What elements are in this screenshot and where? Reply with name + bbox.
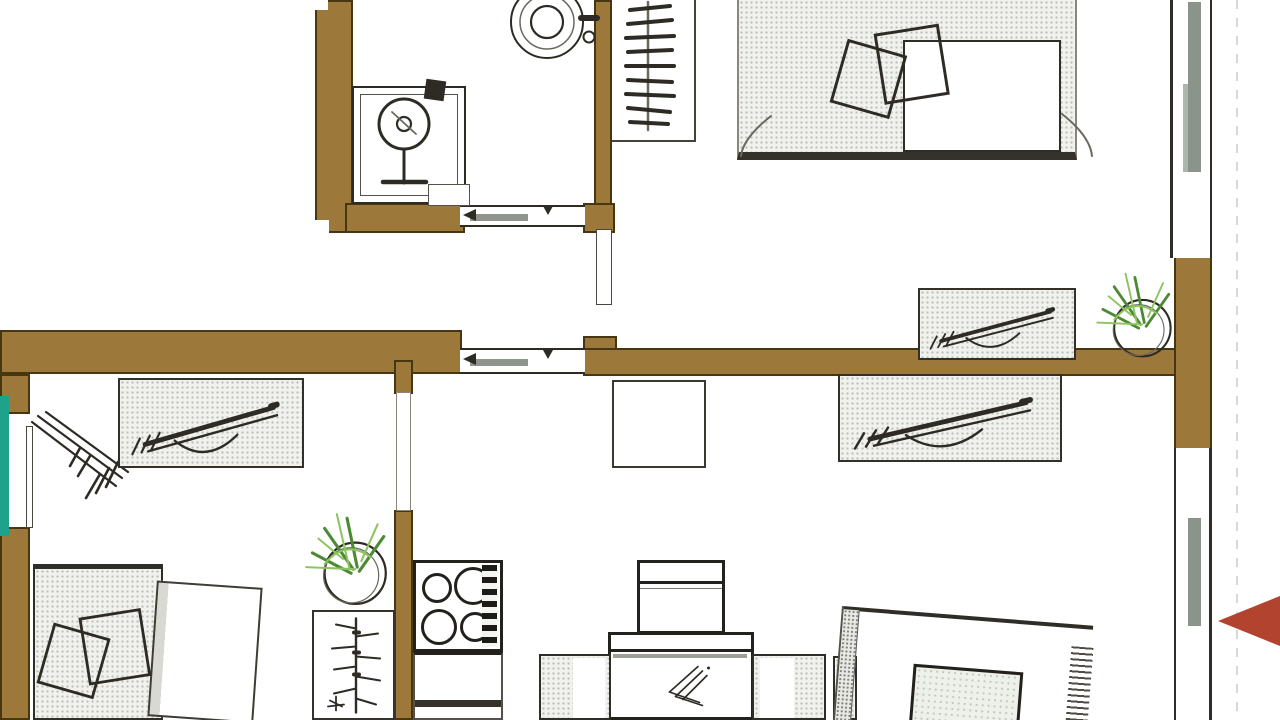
single-bed-duvet <box>147 580 262 720</box>
radiator-icon <box>920 290 1074 358</box>
washbasin-icon <box>503 0 591 66</box>
radiator-sketch <box>918 288 1076 360</box>
door-direction-arrow <box>463 209 476 221</box>
shower-corner-post <box>424 79 447 102</box>
table-edge-line <box>611 649 751 652</box>
coffee-table <box>907 664 1023 720</box>
dining-chair-left <box>539 654 611 720</box>
burner <box>422 573 452 603</box>
stove-grill-strip <box>482 565 497 647</box>
radiator-icon <box>120 380 302 466</box>
radiator-icon <box>840 376 1060 460</box>
bed-skirt-curve <box>735 112 777 158</box>
door-direction-arrow <box>543 206 553 215</box>
counter-drawer-line <box>415 700 501 707</box>
bathroom-east-wall <box>594 0 612 205</box>
floor-plan-scan <box>0 0 1280 720</box>
rug-group <box>829 606 1093 720</box>
window-glazing <box>1188 518 1201 626</box>
hall-door-leaf-open <box>612 380 706 468</box>
stove <box>413 560 503 652</box>
edge-highlight-strip <box>0 396 9 536</box>
kitchen-counter <box>413 652 503 720</box>
rug-right-fringe <box>1061 646 1094 720</box>
wardrobe <box>612 0 696 142</box>
door-direction-arrow <box>543 350 553 359</box>
table-centerpiece-sketch <box>631 659 741 719</box>
chair-back-line <box>640 588 722 589</box>
chair-seat <box>760 658 794 718</box>
potted-plant-icon <box>1086 266 1180 364</box>
window-glazing <box>1183 84 1192 172</box>
wall-notch <box>315 0 328 10</box>
hanger-rail-icon <box>612 0 696 142</box>
dining-table <box>608 632 754 720</box>
bathroom-south-wall <box>345 203 465 233</box>
chair-back-line <box>640 581 722 584</box>
shower-threshold <box>428 184 470 206</box>
wall-notch <box>315 220 329 233</box>
bed-pillows-icon <box>828 18 958 136</box>
radiator-sketch <box>838 374 1062 462</box>
bedroom-door-leaf-open <box>596 229 612 305</box>
living-door-leaf <box>470 359 528 366</box>
rug-top-edge <box>844 606 1094 630</box>
bathroom-door-leaf <box>470 214 528 221</box>
table-glass-line <box>613 654 747 658</box>
tall-plant-planter <box>312 610 395 720</box>
radiator-sketch <box>118 378 304 468</box>
west-long-wall <box>0 330 462 374</box>
bed-skirt-curve <box>1056 108 1098 158</box>
tall-plant-icon <box>314 612 397 718</box>
left-wall-lower <box>0 527 30 720</box>
kitchen-partition-upper <box>394 360 413 394</box>
bathroom-west-wall <box>315 0 353 233</box>
chair-seat <box>573 658 605 718</box>
dining-chair-right <box>752 654 826 720</box>
bed-pillows-icon <box>36 598 158 720</box>
entrance-arrow-icon <box>1218 596 1280 646</box>
kitchen-door-leaf <box>396 392 411 511</box>
door-direction-arrow <box>463 353 476 365</box>
potted-plant-icon <box>294 503 396 615</box>
burner <box>421 609 457 645</box>
dining-chair-top <box>637 560 725 634</box>
